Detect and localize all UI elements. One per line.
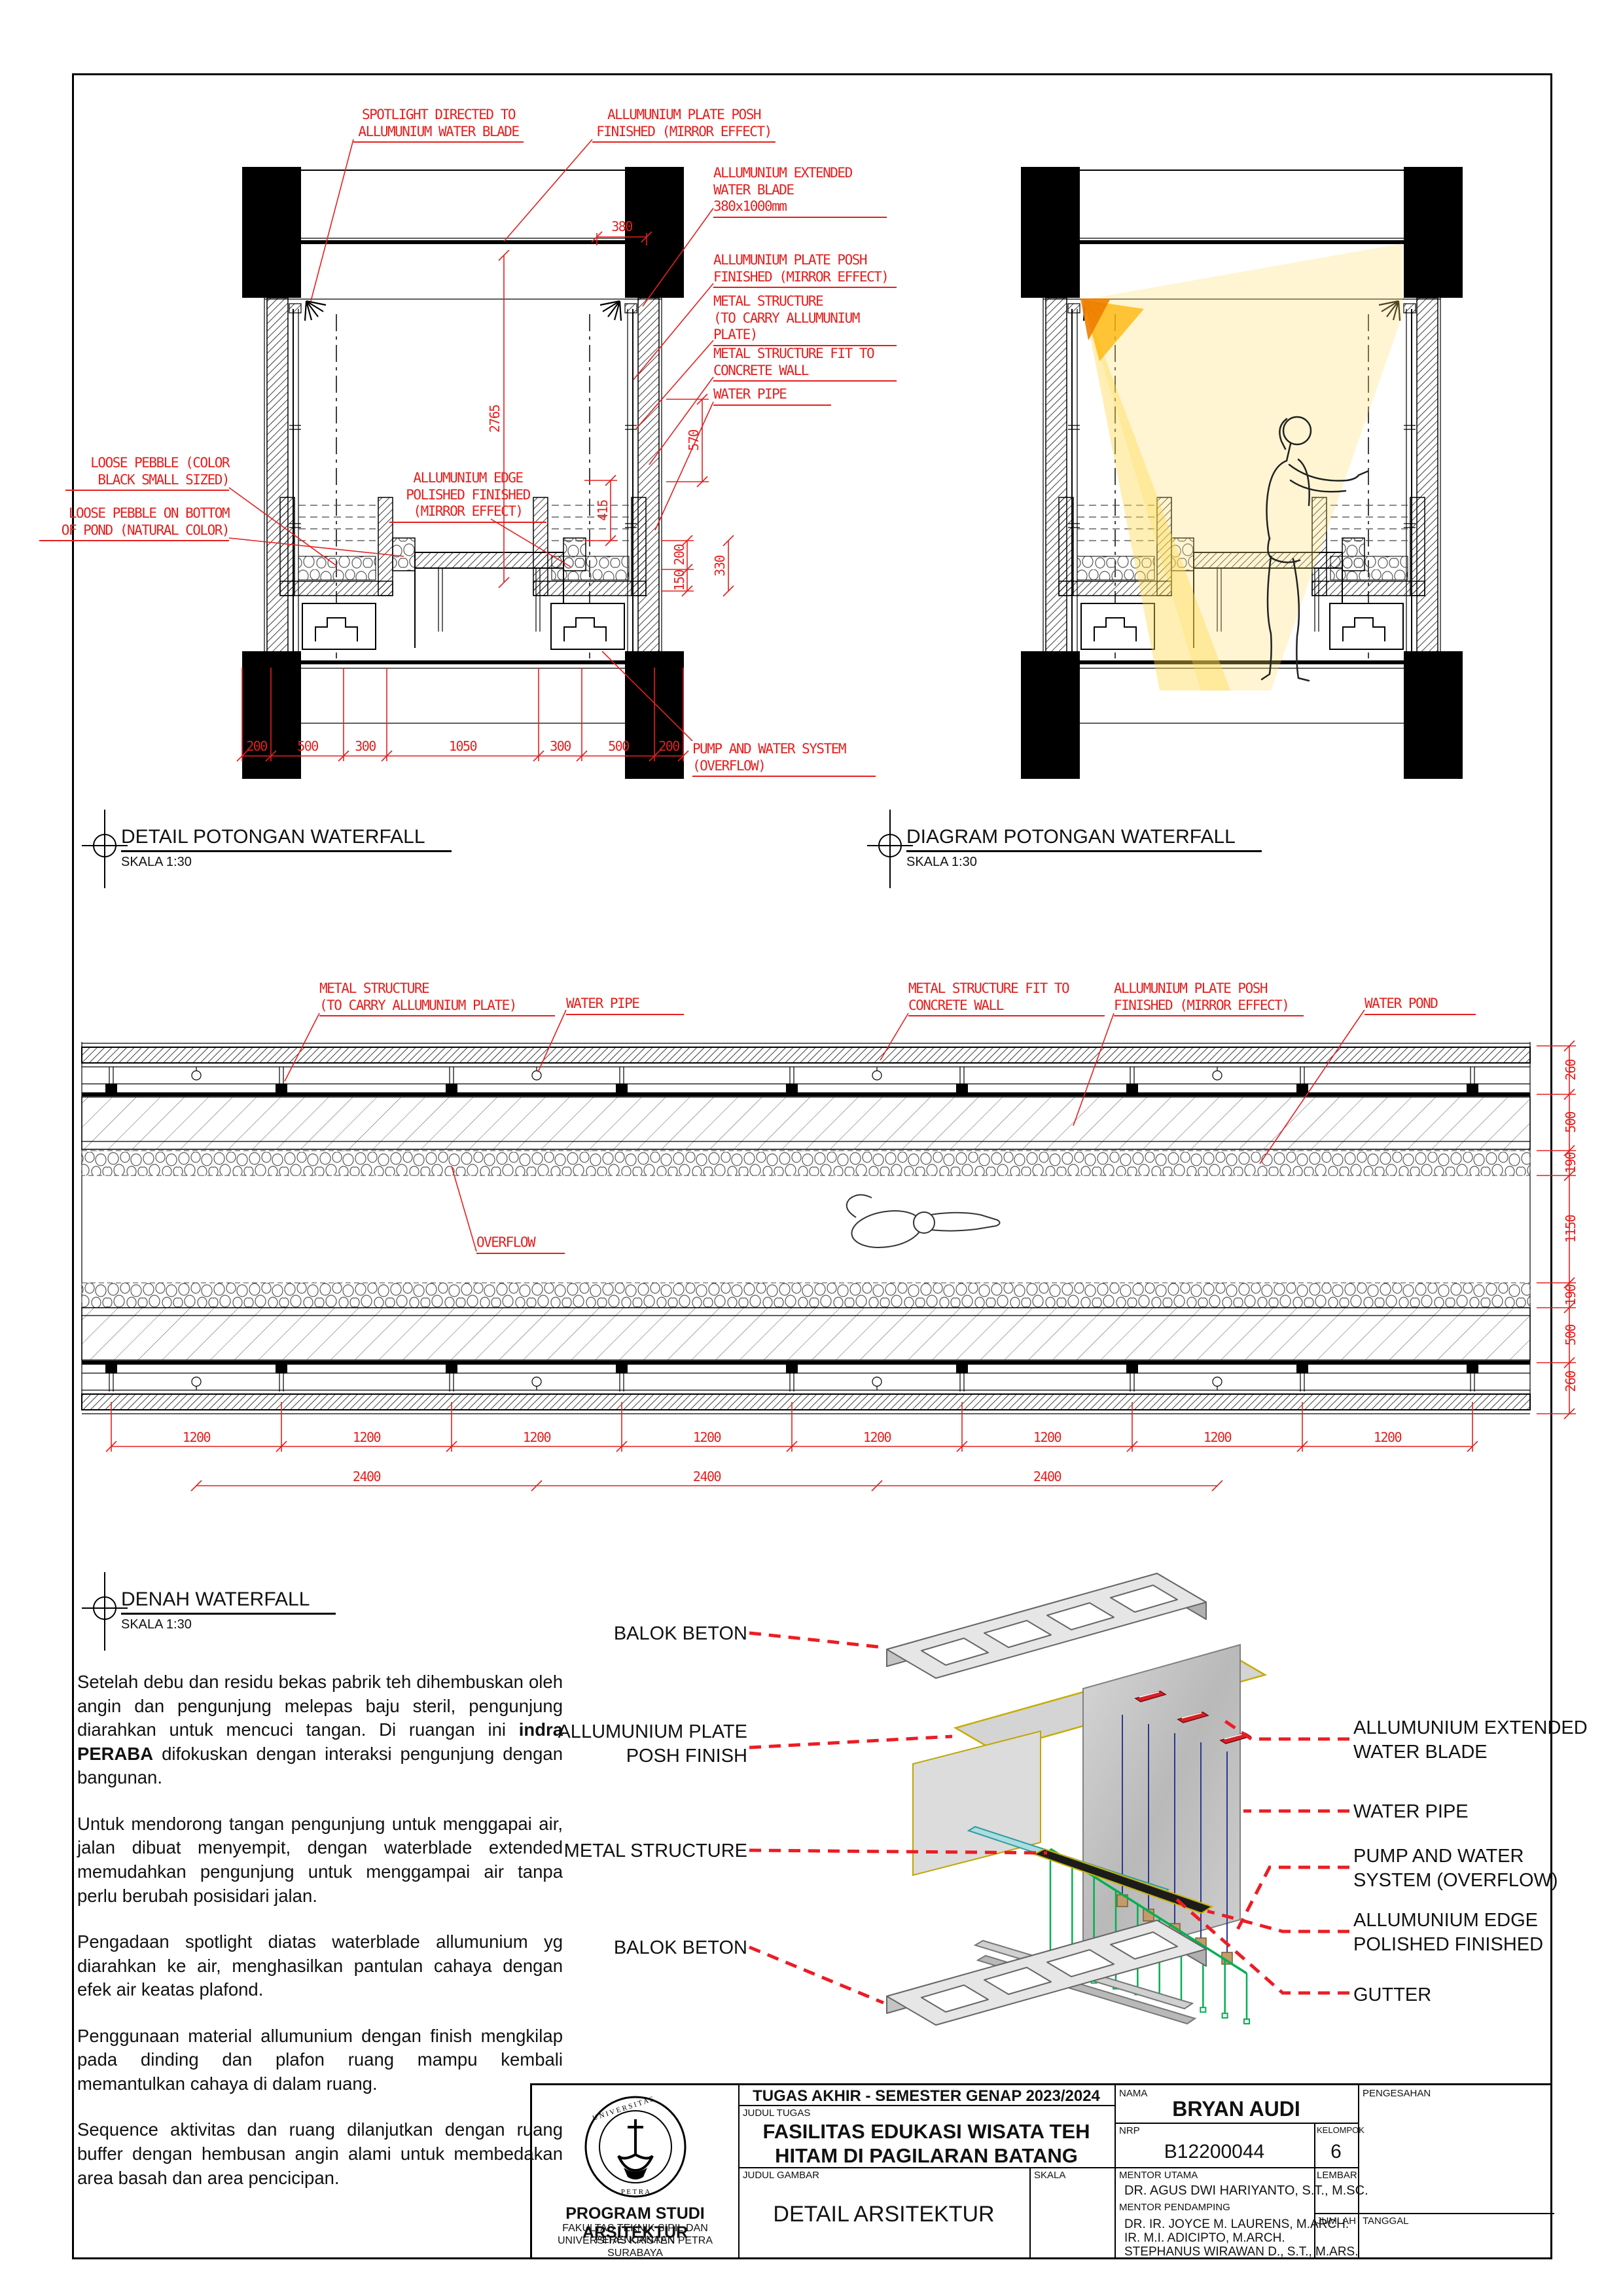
dim-b6: 200 bbox=[658, 738, 679, 754]
note-2: Untuk mendorong tangan pengunjung untuk … bbox=[77, 1812, 563, 1908]
diagram-section-drawing bbox=[864, 98, 1623, 877]
label-water-blade: ALLUMUNIUM EXTENDED WATER BLADE 380x1000… bbox=[713, 165, 887, 218]
pendamping-0: DR. IR. JOYCE M. LAURENS, M.ARCH. bbox=[1124, 2217, 1349, 2232]
svg-text:P E T R A: P E T R A bbox=[621, 2188, 650, 2196]
tb-header: TUGAS AKHIR - SEMESTER GENAP 2023/2024 bbox=[738, 2087, 1115, 2106]
note-3: Pengadaan spotlight diatas waterblade al… bbox=[77, 1930, 563, 2002]
plan-dim-c2: 2400 bbox=[1033, 1469, 1061, 1484]
plan-title: DENAH WATERFALL SKALA 1:30 bbox=[121, 1588, 336, 1632]
drawing-sheet: { "colors":{ "annotation_red":"#e3201f",… bbox=[0, 0, 1623, 2296]
diagram-title: DIAGRAM POTONGAN WATERFALL SKALA 1:30 bbox=[906, 826, 1262, 870]
axon-label-balok-top: BALOK BETON bbox=[614, 1622, 747, 1646]
balok-beton-top bbox=[887, 1573, 1206, 1678]
judul-gambar-label: JUDUL GAMBAR bbox=[743, 2170, 819, 2181]
axon-label-water-blade: ALLUMUNIUM EXTENDED WATER BLADE bbox=[1353, 1716, 1588, 1765]
plan-dim-a0: 1200 bbox=[183, 1429, 210, 1445]
dim-b1: 500 bbox=[297, 738, 318, 754]
axon-label-plate: ALLUMUNIUM PLATE POSH FINISH bbox=[558, 1720, 747, 1768]
spotlight-icon bbox=[305, 301, 621, 321]
plan-label-metal-carry: METAL STRUCTURE (TO CARRY ALLUMUNIUM PLA… bbox=[319, 980, 555, 1016]
note-5: Sequence aktivitas dan ruang dilanjutkan… bbox=[77, 2118, 563, 2190]
pump-left bbox=[302, 603, 376, 649]
axon-label-balok-bottom: BALOK BETON bbox=[614, 1936, 747, 1960]
mentor-pendamping-label: MENTOR PENDAMPING bbox=[1119, 2202, 1230, 2213]
label-plate-top: ALLUMUNIUM PLATE POSH FINISHED (MIRROR E… bbox=[592, 107, 776, 143]
plan-dim-c0: 2400 bbox=[353, 1469, 380, 1484]
label-pebble-black: LOOSE PEBBLE (COLOR BLACK SMALL SIZED) bbox=[65, 455, 229, 491]
label-plate-right: ALLUMUNIUM PLATE POSH FINISHED (MIRROR E… bbox=[713, 252, 897, 288]
plan-dim-a1: 1200 bbox=[353, 1429, 380, 1445]
person-top-view bbox=[847, 1194, 1000, 1252]
university-seal-icon: U N I V E R S I T A S P E T R A bbox=[583, 2094, 688, 2199]
lembar-label: LEMBAR bbox=[1317, 2170, 1357, 2181]
plan-dim-c1: 2400 bbox=[693, 1469, 721, 1484]
dim-2765: 2765 bbox=[487, 405, 503, 433]
plan-dim-a5: 1200 bbox=[1033, 1429, 1061, 1445]
note-4: Penggunaan material allumunium dengan fi… bbox=[77, 2024, 563, 2096]
label-pebble-bottom: LOOSE PEBBLE ON BOTTOM OF POND (NATURAL … bbox=[39, 505, 229, 541]
label-water-pipe: WATER PIPE bbox=[713, 386, 831, 406]
mentor-utama-label: MENTOR UTAMA bbox=[1119, 2170, 1198, 2181]
judul-tugas-label: JUDUL TUGAS bbox=[743, 2108, 810, 2119]
jumlah-label: JUMLAH bbox=[1317, 2215, 1356, 2227]
plan-dim-r3: 1150 bbox=[1563, 1215, 1578, 1243]
plan-dim-a4: 1200 bbox=[863, 1429, 891, 1445]
pump-right bbox=[551, 603, 624, 649]
dim-570: 570 bbox=[686, 430, 702, 451]
dim-150: 150 bbox=[671, 570, 687, 591]
section-marker-icon bbox=[79, 806, 131, 891]
institution-line-2: SURABAYA bbox=[532, 2248, 738, 2259]
institution-line-1: UNIVERSITAS KRISTEN PETRA bbox=[532, 2235, 738, 2247]
dim-380: 380 bbox=[611, 219, 632, 234]
dim-b5: 500 bbox=[608, 738, 629, 754]
section-marker-icon bbox=[79, 1569, 131, 1654]
dim-b4: 300 bbox=[550, 738, 571, 754]
plan-dim-a2: 1200 bbox=[523, 1429, 550, 1445]
pendamping-1: IR. M.I. ADICIPTO, M.ARCH. bbox=[1124, 2231, 1285, 2246]
skala-label: SKALA bbox=[1034, 2170, 1065, 2181]
label-metal-fit: METAL STRUCTURE FIT TO CONCRETE WALL bbox=[713, 346, 897, 382]
mentor-utama-value: DR. AGUS DWI HARIYANTO, S.T., M.SC. bbox=[1124, 2183, 1368, 2198]
dim-b2: 300 bbox=[355, 738, 376, 754]
dim-415: 415 bbox=[595, 500, 611, 521]
dim-330: 330 bbox=[712, 556, 728, 577]
plan-label-overflow: OVERFLOW bbox=[476, 1234, 565, 1254]
plan-label-plate: ALLUMUNIUM PLATE POSH FINISHED (MIRROR E… bbox=[1114, 980, 1304, 1016]
nrp-value: B12200044 bbox=[1115, 2141, 1314, 2163]
plan-dim-r2: 190 bbox=[1563, 1153, 1578, 1174]
axon-leader-lines bbox=[749, 1633, 1349, 2003]
note-1: Setelah debu dan residu bekas pabrik teh… bbox=[77, 1670, 563, 1790]
dim-200: 200 bbox=[671, 545, 687, 565]
axon-label-water-pipe: WATER PIPE bbox=[1353, 1800, 1469, 1824]
notes-paragraphs: Setelah debu dan residu bekas pabrik teh… bbox=[77, 1670, 563, 2212]
plan-dim-r5: 500 bbox=[1563, 1325, 1578, 1346]
title-block: U N I V E R S I T A S P E T R A PROGRAM … bbox=[530, 2083, 1552, 2259]
tanggal-label: TANGGAL bbox=[1363, 2215, 1409, 2227]
kelompok-value: 6 bbox=[1314, 2141, 1358, 2163]
pendamping-2: STEPHANUS WIRAWAN D., S.T., M.ARS. bbox=[1124, 2245, 1359, 2259]
plan-dim-a7: 1200 bbox=[1374, 1429, 1401, 1445]
judul-tugas: FASILITAS EDUKASI WISATA TEH HITAM DI PA… bbox=[738, 2119, 1115, 2168]
dim-b3: 1050 bbox=[449, 738, 476, 754]
axon-label-pump: PUMP AND WATER SYSTEM (OVERFLOW) bbox=[1353, 1844, 1558, 1893]
plan-linework bbox=[82, 1042, 1530, 1414]
label-metal-carry: METAL STRUCTURE (TO CARRY ALLUMUNIUM PLA… bbox=[713, 293, 897, 346]
plan-dim-r4: 190 bbox=[1563, 1285, 1578, 1306]
nama-value: BRYAN AUDI bbox=[1115, 2097, 1358, 2121]
nrp-label: NRP bbox=[1119, 2125, 1140, 2136]
plan-dim-r6: 260 bbox=[1563, 1371, 1578, 1392]
axon-label-gutter: GUTTER bbox=[1353, 1983, 1431, 2007]
section-marker-icon bbox=[864, 806, 916, 891]
plan-drawing bbox=[72, 969, 1623, 1558]
axon-label-alu-edge: ALLUMUNIUM EDGE POLISHED FINISHED bbox=[1353, 1909, 1543, 1957]
plan-label-water-pond: WATER POND bbox=[1364, 996, 1476, 1015]
judul-gambar: DETAIL ARSITEKTUR bbox=[738, 2202, 1029, 2227]
plan-dim-r1: 500 bbox=[1563, 1112, 1578, 1133]
label-alu-edge: ALLUMUNIUM EDGE POLISHED FINISHED (MIRRO… bbox=[389, 470, 546, 523]
plan-dim-a3: 1200 bbox=[693, 1429, 721, 1445]
plan-dim-r0: 260 bbox=[1563, 1060, 1578, 1081]
axon-label-metal: METAL STRUCTURE bbox=[564, 1839, 747, 1863]
dim-b0: 200 bbox=[246, 738, 267, 754]
pengesahan-label: PENGESAHAN bbox=[1363, 2088, 1431, 2099]
plan-label-metal-fit: METAL STRUCTURE FIT TO CONCRETE WALL bbox=[908, 980, 1105, 1016]
plan-dim-a6: 1200 bbox=[1204, 1429, 1231, 1445]
plan-label-water-pipe: WATER PIPE bbox=[566, 996, 684, 1015]
label-spotlight: SPOTLIGHT DIRECTED TO ALLUMUNIUM WATER B… bbox=[353, 107, 524, 143]
detail-title: DETAIL POTONGAN WATERFALL SKALA 1:30 bbox=[121, 826, 452, 870]
label-pump: PUMP AND WATER SYSTEM (OVERFLOW) bbox=[692, 741, 876, 777]
kelompok-label: KELOMPOK bbox=[1317, 2125, 1364, 2135]
